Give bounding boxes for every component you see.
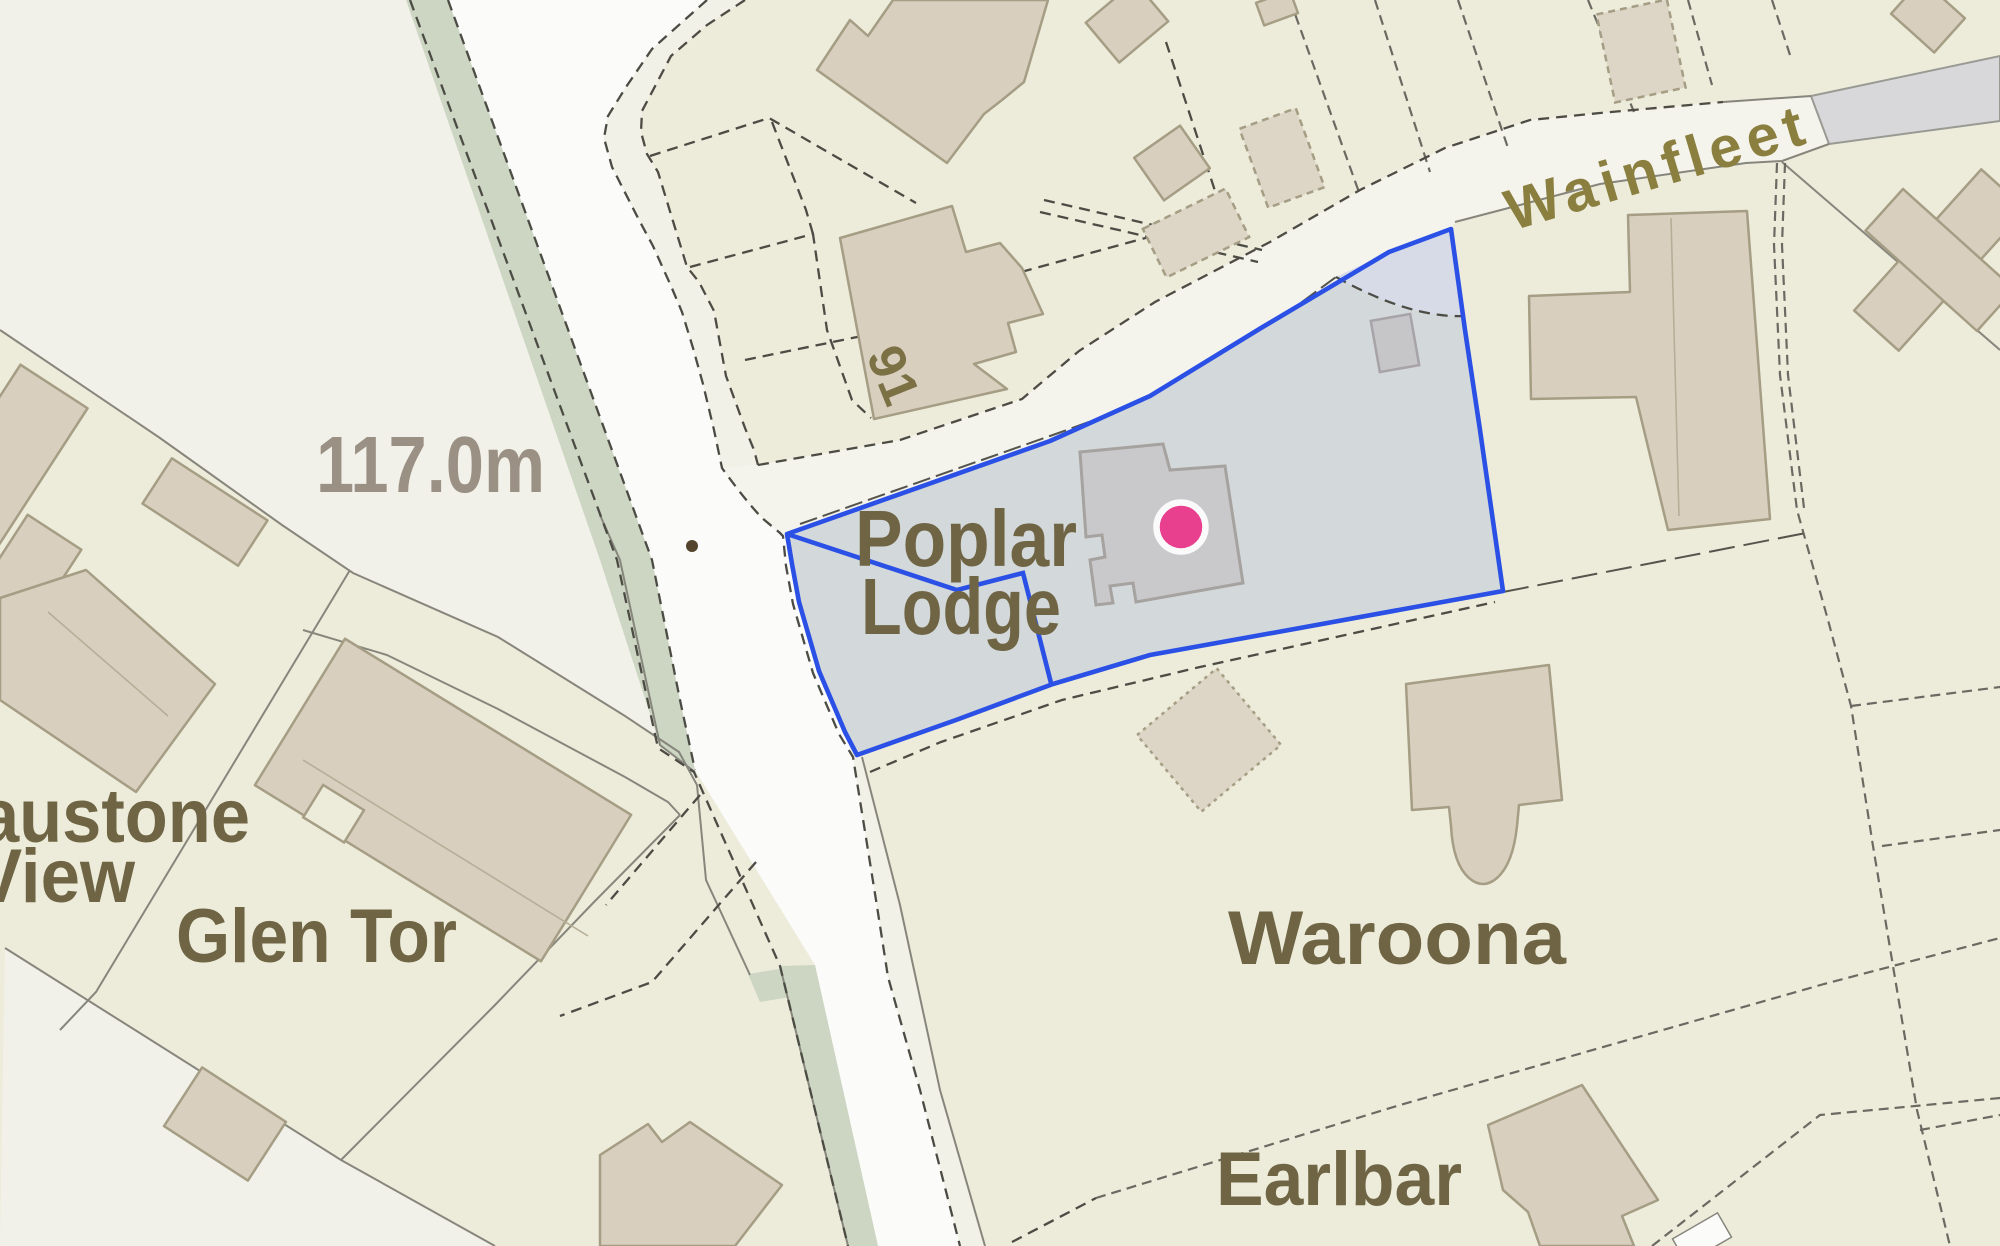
svg-text:View: View — [0, 834, 136, 919]
svg-text:Glen Tor: Glen Tor — [176, 894, 457, 979]
svg-text:117.0m: 117.0m — [316, 420, 545, 509]
svg-text:Waroona: Waroona — [1228, 896, 1567, 981]
svg-text:Earlbar: Earlbar — [1216, 1137, 1462, 1222]
svg-text:Lodge: Lodge — [861, 562, 1061, 651]
